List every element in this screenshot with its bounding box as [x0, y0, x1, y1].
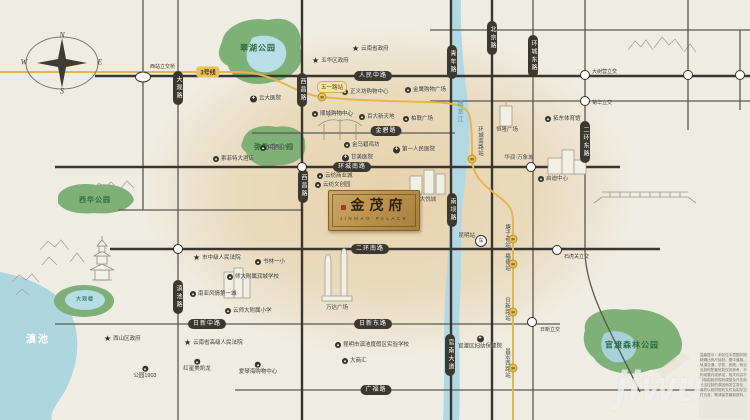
- project-name-en: JINMAO PALACE: [340, 216, 408, 221]
- interchange-circle: [527, 317, 537, 327]
- poi-bailian-plaza: ◆ 柏联广场: [403, 116, 433, 122]
- interchange-circle: [552, 245, 562, 255]
- watermark: jiwu: [615, 362, 705, 412]
- park-label-daguanlou: 大观楼: [76, 296, 94, 303]
- shopping-icon: ◆: [403, 116, 409, 122]
- poi-mingtong-school: ◆ 明通小学: [260, 145, 290, 151]
- metro-station-label-huanchengnanlu: 环城南路站: [476, 126, 484, 156]
- poi-sofitel-hotel: ◆ 索菲特大酒店: [213, 156, 254, 162]
- interchange-circle: [735, 70, 745, 80]
- hospital-icon: +: [393, 147, 400, 154]
- poi-qidi-center: ◆ 启迪中心: [538, 176, 568, 182]
- poi-aiqinhai: ◆ 爱琴海购物中心: [239, 362, 278, 375]
- poi-yunfang-creative-park: ◆ 云纺文创园: [315, 182, 351, 188]
- disclaimer-text: 温馨提示：本区位示意图非按精确比例尺绘制，图中道路、轨道交通、学校、医院、商业及…: [699, 352, 748, 418]
- metro-station-dot: M: [509, 235, 518, 244]
- poi-wanda-plaza: 万达广场: [326, 303, 348, 311]
- interchange-circle: [526, 162, 536, 172]
- star-icon: ★: [312, 57, 319, 65]
- road-label-guannan: 官南大道: [445, 334, 455, 376]
- location-map: N W E S 翠湖公园 弥勒寺公园 西华公园 大观楼 官渡森林公园 滇池 盘龙…: [0, 0, 750, 420]
- poi-shuncheng: ◆ 顺城购物中心: [312, 111, 353, 117]
- star-xishan-gov: ★ 西山区政府: [104, 335, 141, 343]
- star-high-court: ★ 云南省高级人民法院: [184, 339, 243, 347]
- project-plaque: 金茂府 JINMAO PALACE: [328, 190, 420, 231]
- road-label-xichang-n: 西昌路: [297, 73, 307, 107]
- hospital-ganmei: + 甘美医院: [342, 155, 373, 162]
- poi-tuodong-stadium: ◆ 拓东体育馆: [545, 116, 581, 122]
- interchange-circle: [580, 96, 590, 106]
- shopping-icon: ◆: [194, 359, 200, 365]
- shopping-icon: ◆: [342, 358, 348, 364]
- shopping-icon: ◆: [142, 366, 148, 372]
- star-icon: ★: [184, 339, 191, 347]
- park-label-cuihu: 翠湖公园: [240, 43, 276, 54]
- shopping-icon: ◆: [359, 114, 365, 120]
- metro-station-dot: M: [509, 308, 518, 317]
- hospital-guandu-maternity: + 官渡区妇幼保健院: [458, 335, 502, 349]
- poi-dashanghui: ◆ 大商汇: [342, 358, 367, 364]
- poi-yunshida-primary: ◆ 云师大附属小学: [225, 308, 272, 314]
- interchange-label-xizhan: 西站立交桥: [150, 63, 175, 70]
- shopping-icon: ◆: [190, 291, 196, 297]
- shopping-icon: ◆: [315, 182, 321, 188]
- star-provincial-gov: ★ 云南省政府: [352, 45, 389, 53]
- metro-station-dot: M: [318, 93, 327, 102]
- interchange-label-rixin: 日新立交: [540, 326, 560, 333]
- poi-jinying-plaza: ◆ 金鹰购物广场: [405, 87, 446, 93]
- pagoda-sketch: [90, 236, 114, 280]
- road-label-rixinzhong: 日新中路: [188, 319, 226, 329]
- road-label-qingnian: 青年路: [447, 45, 457, 79]
- metro-station-dot: M: [509, 260, 518, 269]
- poi-hanglung-plaza: 恒隆广场: [496, 125, 518, 133]
- road-label-beijing: 北京路: [487, 21, 497, 55]
- road-label-dianchilu: 滇池路: [173, 280, 183, 314]
- poi-shulin-school: ◆ 书林一小: [255, 259, 285, 265]
- landmark-icon: ◆: [344, 142, 350, 148]
- poi-yunfang-mall: ◆ 云纺商业城: [317, 173, 353, 179]
- road-label-xichang-s: 西昌路: [298, 169, 308, 203]
- road-label-daguan: 大观路: [173, 71, 183, 105]
- interchange-label-juhua: 菊华立交: [592, 99, 612, 106]
- poi-kunming-station: 昆明站: [443, 233, 475, 239]
- school-icon: ◆: [335, 342, 341, 348]
- poi-shida-runcheng-school: ◆ 师大附属润城学校: [227, 274, 279, 280]
- road-label-jinbi: 金碧路: [370, 126, 401, 136]
- project-name: 金茂府: [349, 200, 408, 214]
- hospital-icon: +: [476, 335, 483, 342]
- poi-park1903: ◆ 公园1903: [133, 366, 156, 379]
- poi-joy-city: 大悦城: [420, 195, 437, 203]
- hospital-icon: +: [250, 96, 257, 103]
- star-wuhua-gov: ★ 五华区政府: [312, 57, 349, 65]
- poi-hongxing-macalline: ◆ 红星美凯龙: [183, 359, 211, 372]
- metro-station-label-changhongxilu: 昌宏西路站: [503, 348, 511, 378]
- star-icon: ★: [104, 335, 111, 343]
- road-label-erhuandong: 二环东路: [580, 121, 590, 163]
- metro-line3-badge: 3号线: [196, 67, 219, 78]
- shopping-icon: ◆: [405, 87, 411, 93]
- road-label-huanchengdong: 环城东路: [528, 35, 538, 77]
- school-icon: ◆: [227, 274, 233, 280]
- hospital-first-peoples: + 第一人民医院: [393, 147, 435, 154]
- hospital-icon: +: [342, 155, 349, 162]
- seal-icon: [341, 205, 346, 210]
- metro-station-dot: M: [468, 155, 477, 164]
- metro-station-badge-wuyilu: 五一路站: [317, 81, 347, 93]
- shopping-icon: ◆: [312, 111, 318, 117]
- interchange-circle: [580, 70, 590, 80]
- plaque-inner-border: 金茂府 JINMAO PALACE: [332, 194, 416, 227]
- star-icon: ★: [352, 45, 359, 53]
- stadium-icon: ◆: [545, 116, 551, 122]
- park-label-xihua: 西华公园: [79, 195, 111, 205]
- interchange-circle: [173, 244, 183, 254]
- road-label-renminzhong: 人民中路: [354, 71, 392, 81]
- compass-n: N: [59, 31, 64, 40]
- poi-jinma-archway: ◆ 金马碧鸡坊: [344, 142, 380, 148]
- star-intermediate-court: ★ 市中级人民法院: [193, 254, 241, 262]
- park-label-guandu-forest: 官渡森林公园: [605, 340, 659, 351]
- interchange-circle: [135, 72, 151, 83]
- poi-nanya-city: ◆ 南亚风情第一城: [190, 291, 237, 297]
- metro-station-dot: M: [509, 364, 518, 373]
- star-icon: ★: [193, 254, 200, 262]
- poi-dianchi-resort-school: ◆ 昆明市滇池度假区实验学校: [335, 342, 409, 348]
- road-label-erhuannan: 二环南路: [351, 244, 389, 254]
- hotel-icon: ◆: [213, 156, 219, 162]
- interchange-circle: [297, 162, 307, 172]
- lake-label-dianchi: 滇池: [26, 331, 50, 346]
- interchange-label-dashuying: 大树营立交: [592, 68, 617, 75]
- poi-mixc: 华润·万象城: [504, 153, 533, 161]
- road-label-rixindong: 日新东路: [354, 319, 392, 329]
- poi-zhengyifang: ◆ 正义坊购物中心: [342, 89, 389, 95]
- interchange-label-shihuguan: 石虎关立交: [564, 253, 589, 260]
- compass-e: E: [98, 58, 103, 67]
- school-icon: ◆: [225, 308, 231, 314]
- poi-baida-newtown: ◆ 百大新天地: [359, 114, 395, 120]
- road-label-guangfu: 广福路: [360, 385, 391, 395]
- shopping-icon: ◆: [317, 173, 323, 179]
- compass-s: S: [60, 87, 64, 96]
- school-icon: ◆: [255, 259, 261, 265]
- road-label-nanba: 南坝路: [447, 193, 457, 227]
- interchange-circle: [683, 70, 693, 80]
- hospital-yunda: + 云大医院: [250, 96, 281, 103]
- road-label-huanchengnan: 环城南路: [333, 162, 371, 172]
- compass-rose: [26, 37, 98, 89]
- train-station-icon: 车: [475, 235, 487, 247]
- office-icon: ◆: [538, 176, 544, 182]
- shopping-icon: ◆: [255, 362, 261, 368]
- river-label-panlongjiang: 盘龙江: [455, 100, 464, 124]
- compass-w: W: [21, 58, 28, 67]
- school-icon: ◆: [260, 145, 266, 151]
